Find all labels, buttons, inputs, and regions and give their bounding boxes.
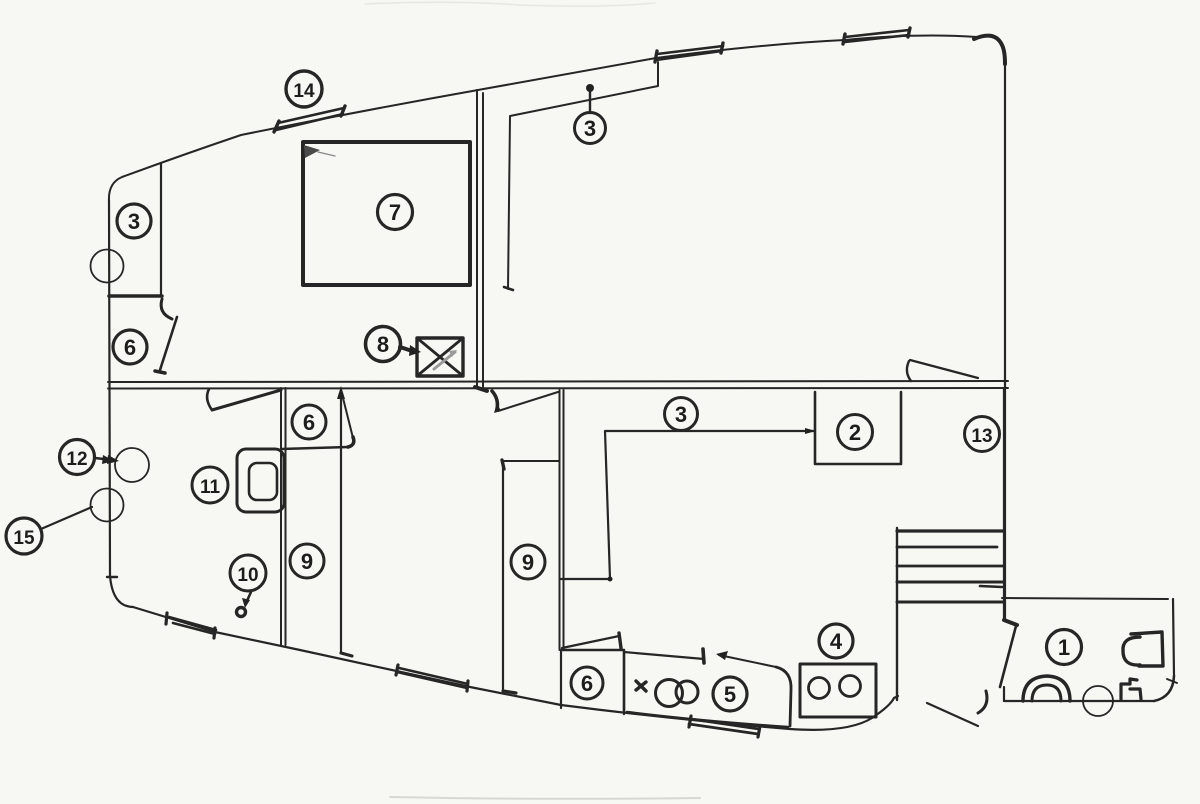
svg-text:9: 9 [522,550,534,575]
svg-text:6: 6 [581,671,593,696]
svg-text:12: 12 [66,449,87,470]
svg-text:9: 9 [301,549,313,574]
svg-text:14: 14 [293,81,315,102]
svg-text:11: 11 [200,477,221,498]
svg-text:2: 2 [849,420,861,445]
svg-text:7: 7 [389,200,401,225]
svg-text:3: 3 [584,116,596,141]
svg-text:4: 4 [830,629,843,654]
svg-text:5: 5 [724,682,736,707]
svg-text:1: 1 [1058,635,1070,660]
svg-text:13: 13 [971,426,992,447]
svg-text:6: 6 [124,335,136,360]
svg-text:3: 3 [675,402,687,427]
svg-text:8: 8 [377,332,389,357]
svg-text:6: 6 [303,410,315,435]
svg-text:15: 15 [13,528,35,549]
svg-text:10: 10 [237,565,258,586]
svg-text:3: 3 [128,209,140,234]
